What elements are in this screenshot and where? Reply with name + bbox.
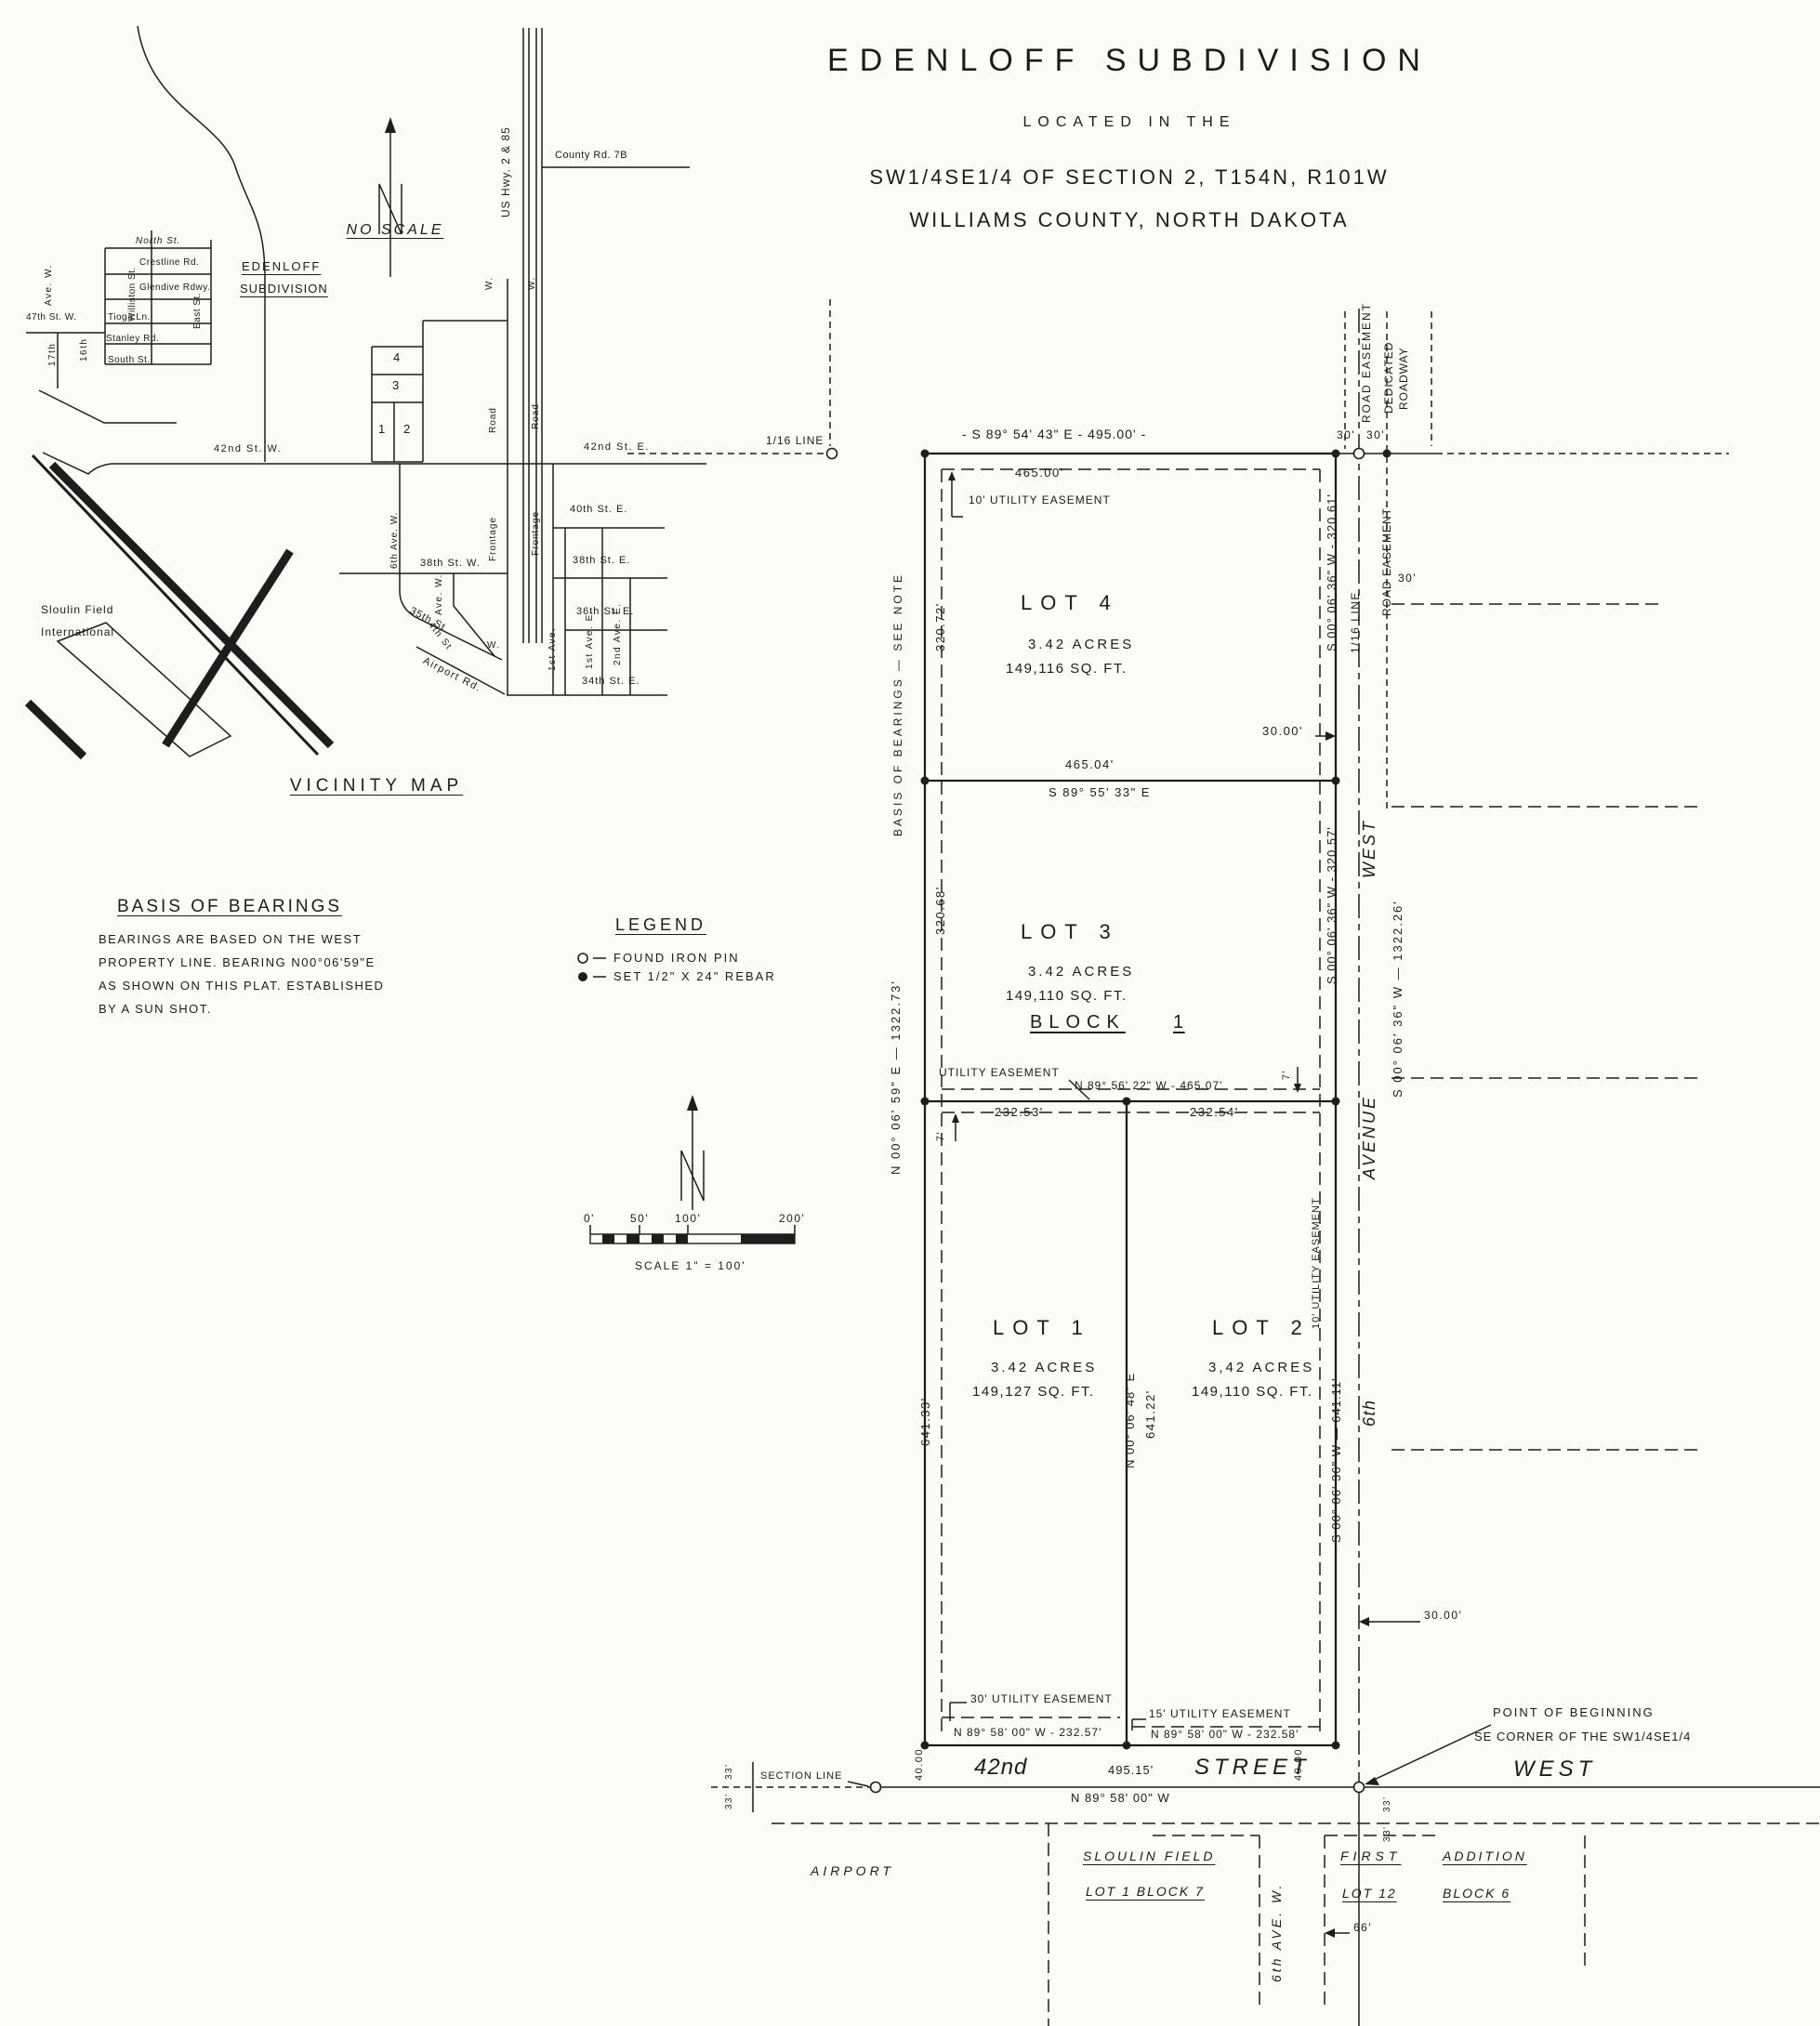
west-boundary-bearing: N 00° 06' 59" E — 1322.73' [890, 980, 902, 1175]
street-ave-w-17: Ave. W. [45, 264, 54, 306]
block-number: 1 [1173, 1013, 1185, 1032]
dim-232-54: 232.54' [1190, 1106, 1239, 1118]
street-42nd-w: 42nd St. W. [214, 444, 282, 454]
legend-heading: LEGEND [615, 916, 706, 933]
dim-232-53: 232.53' [995, 1106, 1044, 1118]
lot3-title: LOT 3 [1021, 922, 1119, 942]
lot2-acres: 3,42 ACRES [1208, 1361, 1314, 1375]
dim-33-d: 33' [1383, 1825, 1392, 1842]
street-east-st: East St. [193, 293, 203, 329]
street-williston: Williston St. [128, 267, 138, 322]
plat-sheet: EDENLOFF SUBDIVISION LOCATED IN THE SW1/… [0, 0, 1820, 2026]
dim-320-68: 320.68' [934, 886, 946, 935]
easement-10ft-top: 10' UTILITY EASEMENT [969, 494, 1111, 506]
street-road-w: Road [489, 407, 498, 433]
street-42nd-bearing: N 89° 58' 00" W [1071, 1792, 1170, 1804]
basis-heading: BASIS OF BEARINGS [117, 898, 342, 915]
vicinity-lot-3: 3 [392, 379, 401, 391]
label-w-1: W. [485, 276, 495, 290]
street-42nd-name: 42nd [974, 1756, 1027, 1779]
dim-641-33: 641.33' [919, 1397, 931, 1446]
legend-found-iron-pin: FOUND IRON PIN [613, 952, 740, 964]
dim-641-22: 641.22' [1144, 1389, 1156, 1439]
vicinity-edenloff-1: EDENLOFF [242, 260, 321, 272]
dim-e-320-61: S 00° 06' 36" W - 320.61' [1325, 493, 1338, 651]
basis-line-2: PROPERTY LINE. BEARING N00°06'59"E [99, 956, 376, 968]
page-title: EDENLOFF SUBDIVISION [651, 45, 1608, 76]
county-rd-label: County Rd. 7B [555, 151, 627, 161]
street-47th: 47th St. W. [26, 313, 76, 322]
lot1-block7-label: LOT 1 BLOCK 7 [1086, 1885, 1205, 1898]
block-title: BLOCK [1030, 1013, 1126, 1032]
basis-line-1: BEARINGS ARE BASED ON THE WEST [99, 933, 362, 945]
street-42nd-street: STREET [1194, 1756, 1311, 1779]
section-line-label: SECTION LINE [760, 1771, 842, 1782]
vicinity-lot-1: 1 [378, 423, 387, 435]
street-crestline: Crestline Rd. [139, 258, 199, 268]
street-42nd-west: WEST [1513, 1758, 1596, 1781]
street-34th-e: 34th St. E. [582, 677, 640, 687]
scale-50: 50' [630, 1213, 649, 1224]
dim-north-bearing: - S 89° 54' 43" E - 495.00' - [962, 428, 1146, 441]
label-w-2: W. [528, 276, 537, 290]
street-stanley: Stanley Rd. [106, 335, 159, 344]
scale-bar [590, 1225, 795, 1243]
street-glendive: Glendive Rdwy. [139, 283, 210, 293]
lot4-sqft: 149,116 SQ. FT. [1006, 662, 1128, 676]
legend-symbols [578, 954, 606, 981]
dim-30-a: 30' [1337, 429, 1355, 441]
lot3-acres: 3.42 ACRES [1028, 965, 1134, 979]
lot1-acres: 3.42 ACRES [991, 1361, 1097, 1375]
road-easement-top: ROAD EASEMENT [1361, 302, 1372, 423]
dim-30-b: 30' [1366, 429, 1385, 441]
vicinity-lot-2: 2 [403, 423, 412, 435]
street-6th-name: 6th [1361, 1399, 1378, 1427]
sloulin-field-1: Sloulin Field [41, 604, 113, 615]
basis-note-line: BASIS OF BEARINGS — SEE NOTE [892, 572, 903, 836]
street-road-e: Road [532, 403, 541, 429]
us-hwy-label: US Hwy. 2 & 85 [500, 126, 511, 217]
lot4-title: LOT 4 [1021, 593, 1119, 613]
street-frontage-e: Frontage [532, 511, 541, 556]
street-west-name: WEST [1361, 819, 1378, 878]
dim-30-00-b: 30.00' [1424, 1610, 1462, 1621]
easement-10ft-right: 10' UTILITY EASEMENT [1312, 1197, 1322, 1329]
easement-lines [627, 299, 1729, 1783]
dim-30-00-a: 30.00' [1262, 725, 1303, 737]
street-lines [711, 1762, 1820, 2026]
scale-0: 0' [584, 1213, 595, 1224]
road-easement-mid: ROAD EASEMENT [1381, 507, 1392, 616]
street-38th-e: 38th St. E. [573, 556, 630, 566]
dim-66: 66' [1353, 1922, 1372, 1933]
street-1st-ave-b: 1st Ave. E. [586, 610, 595, 669]
addition-label: ADDITION [1443, 1849, 1527, 1862]
street-2nd-ave: 2nd Ave. E. [613, 603, 623, 665]
lot3-sqft: 149,110 SQ. FT. [1006, 989, 1128, 1003]
lot4-acres: 3.42 ACRES [1028, 638, 1134, 651]
lot12-label: LOT 12 [1342, 1887, 1397, 1900]
bearing-465-07: N 89° 56' 22" W - 465.07' [1075, 1080, 1222, 1091]
dim-465-00: 465.00' [1015, 467, 1064, 479]
roadway-label: ROADWAY [1398, 347, 1409, 410]
dim-33-a: 33' [725, 1763, 734, 1780]
label-w-3: W. [487, 641, 501, 651]
sixteenth-line-top: 1/16 LINE [766, 435, 824, 446]
dim-e-320-57: S 00° 06' 36" W - 320.57' [1325, 826, 1338, 984]
pob-line-2: SE CORNER OF THE SW1/4SE1/4 [1474, 1730, 1691, 1743]
street-north-st: North St. [136, 237, 180, 246]
easement-30ft: 30' UTILITY EASEMENT [970, 1693, 1113, 1704]
lot1-title: LOT 1 [993, 1318, 1091, 1338]
airport-label: AIRPORT [811, 1864, 894, 1877]
street-south-st: South St. [108, 356, 151, 365]
plat-linework [0, 0, 1820, 2026]
vicinity-edenloff-2: SUBDIVISION [240, 283, 328, 295]
legend-set-rebar: SET 1/2" X 24" REBAR [613, 970, 776, 982]
scale-100: 100' [675, 1213, 701, 1224]
dim-7-b: 7' [1282, 1070, 1292, 1080]
title-section: SW1/4SE1/4 OF SECTION 2, T154N, R101W [651, 167, 1608, 188]
vicinity-heading: VICINITY MAP [274, 777, 479, 795]
bearing-232-58: N 89° 58' 00" W - 232.58' [1151, 1729, 1299, 1740]
bearing-232-57: N 89° 58' 00" W - 232.57' [954, 1727, 1101, 1738]
lot2-sqft: 149,110 SQ. FT. [1192, 1385, 1313, 1399]
street-6th-ave-w: 6th Ave. W. [390, 512, 400, 569]
street-42nd-length: 495.15' [1108, 1764, 1154, 1776]
street-40th-e: 40th St. E. [570, 505, 627, 515]
street-16th: 16th [80, 338, 89, 362]
vicinity-lot-4: 4 [393, 351, 402, 363]
dim-7-a: 7' [936, 1131, 946, 1141]
title-county: WILLIAMS COUNTY, NORTH DAKOTA [651, 210, 1608, 230]
lot1-sqft: 149,127 SQ. FT. [972, 1385, 1095, 1399]
bearing-465-04: S 89° 55' 33" E [1048, 786, 1151, 798]
street-ave-w-4th: Ave. W. [435, 573, 444, 615]
utility-easement-label: UTILITY EASEMENT [939, 1067, 1060, 1078]
no-scale-note: NO SCALE [335, 223, 455, 238]
dim-33-c: 33' [1383, 1796, 1392, 1812]
first-label: FIRST [1340, 1849, 1401, 1862]
basis-line-4: BY A SUN SHOT. [99, 1003, 212, 1015]
mid-bearing: N 00° 06' 48" E [1124, 1373, 1136, 1468]
street-1st-ave-a: 1st Ave. [548, 627, 558, 671]
dedicated-label: DEDICATED [1383, 342, 1394, 414]
street-6th-ave-south: 6th AVE. W. [1270, 1883, 1283, 1982]
street-42nd-e: 42nd St. E. [584, 442, 650, 453]
sixteenth-line-right: 1/16 LINE [1350, 591, 1361, 653]
street-avenue-name: AVENUE [1361, 1095, 1378, 1179]
dim-30-c: 30' [1398, 572, 1417, 584]
street-38th-w: 38th St. W. [420, 559, 481, 569]
east-boundary-bearing: S 00° 06' 36" W — 1322.26' [1391, 900, 1404, 1098]
easement-15ft: 15' UTILITY EASEMENT [1149, 1708, 1291, 1719]
street-17th: 17th [48, 343, 58, 366]
dim-40-a: 40.00 [915, 1748, 925, 1781]
title-located: LOCATED IN THE [651, 115, 1608, 130]
basis-line-3: AS SHOWN ON THIS PLAT. ESTABLISHED [99, 980, 384, 992]
scale-caption: SCALE 1" = 100' [635, 1260, 746, 1271]
street-frontage-w: Frontage [489, 517, 498, 561]
lot2-title: LOT 2 [1212, 1318, 1311, 1338]
dim-e-641-11: S 00° 06' 36" W — 641.11' [1330, 1377, 1342, 1543]
sloulin-field-2: International [41, 626, 114, 638]
pob-line-1: POINT OF BEGINNING [1493, 1706, 1655, 1718]
block6-label: BLOCK 6 [1443, 1887, 1510, 1900]
dim-33-b: 33' [725, 1793, 734, 1809]
scale-200: 200' [779, 1213, 805, 1224]
sloulin-field-parcel: SLOULIN FIELD [1083, 1849, 1215, 1862]
dim-320-72: 320.72' [934, 602, 946, 651]
dim-465-04: 465.04' [1065, 758, 1114, 770]
